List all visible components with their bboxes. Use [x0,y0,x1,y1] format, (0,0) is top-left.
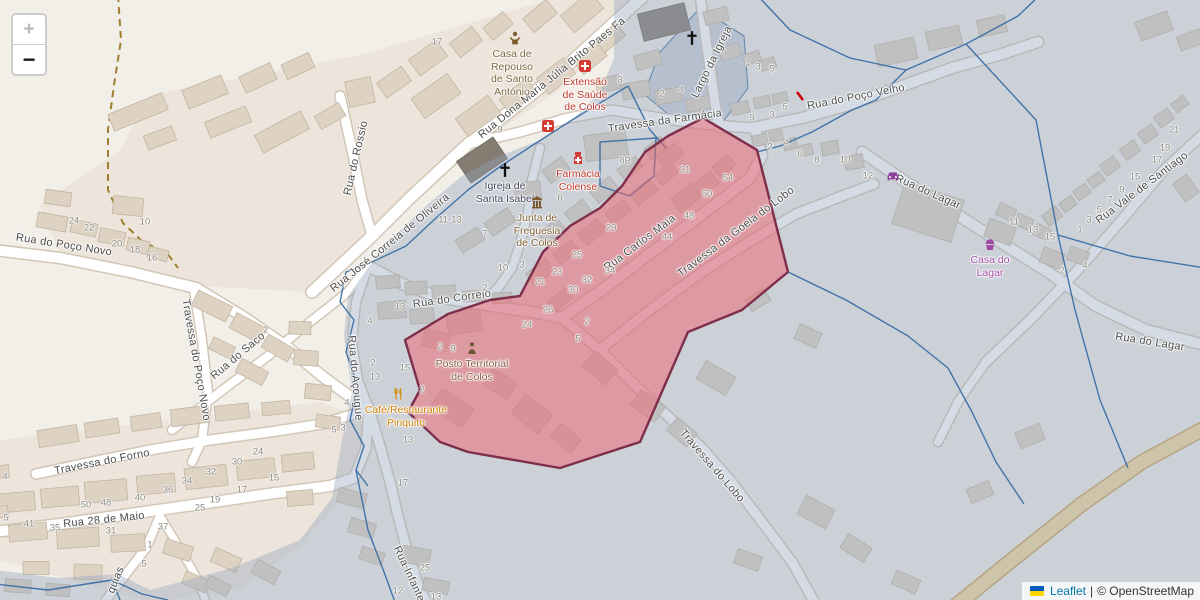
building [0,505,8,518]
attribution-separator: | [1090,584,1093,598]
zoom-in-button[interactable]: + [13,15,45,45]
ukraine-flag-icon [1030,586,1044,596]
building [136,473,176,495]
building [23,562,49,575]
building [281,452,315,472]
building [304,383,331,401]
building [84,479,128,504]
building [40,486,80,508]
map-canvas[interactable]: Rua Dona Maria Júlia Brito Paes FaLargo … [0,0,1200,600]
building [56,527,99,549]
building [0,465,10,480]
map-base-layer [0,0,1200,600]
building [294,350,319,367]
building [315,414,341,430]
building [261,400,290,416]
building [214,403,249,421]
building [236,458,276,481]
building [184,464,228,489]
building [286,489,313,506]
building [345,77,376,108]
attribution-bar: Leaflet | © OpenStreetMap [1022,582,1200,600]
osm-attribution[interactable]: © OpenStreetMap [1097,584,1194,598]
building [112,195,144,216]
zoom-control: + − [11,13,47,76]
building [8,522,47,542]
zoom-out-button[interactable]: − [13,45,45,74]
building [289,321,311,335]
leaflet-link[interactable]: Leaflet [1050,584,1086,598]
building [111,534,146,553]
